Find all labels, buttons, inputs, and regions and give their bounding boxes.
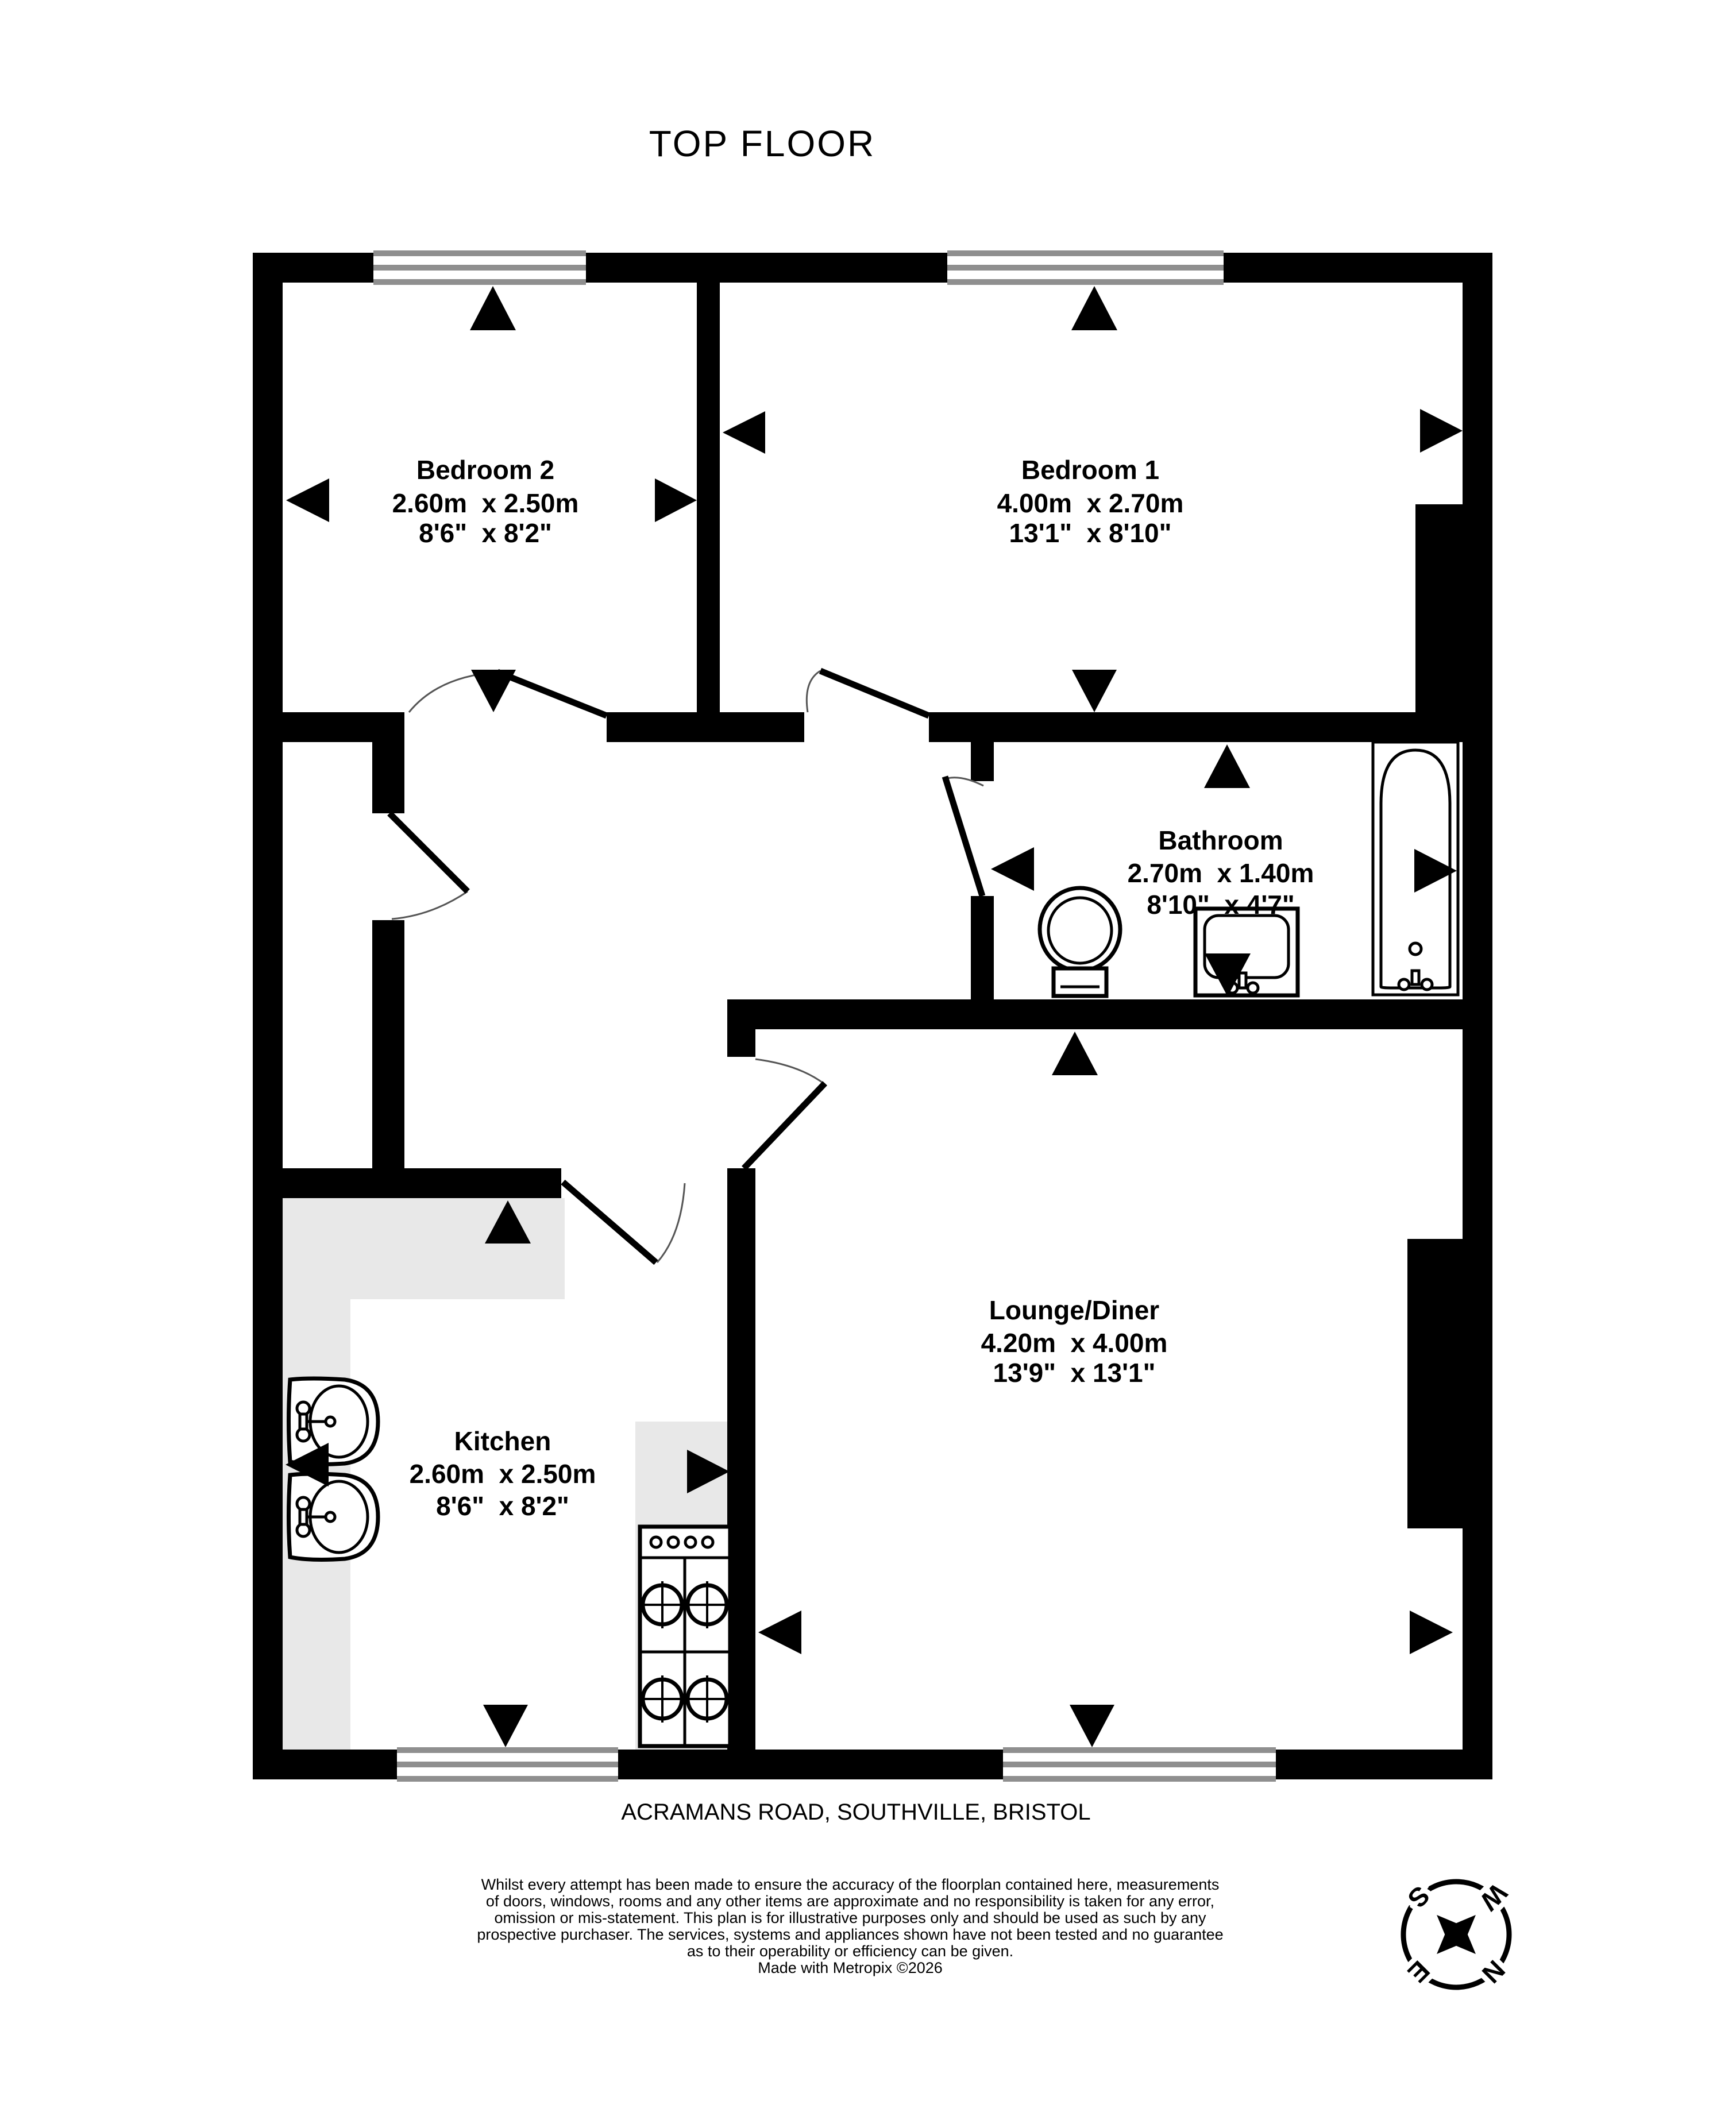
floorplan-svg: TOP FLOOR bbox=[0, 0, 1736, 2120]
window-kitchen bbox=[397, 1747, 618, 1782]
room-name: Bedroom 2 bbox=[416, 455, 554, 485]
door-lounge bbox=[744, 1059, 825, 1168]
room-name: Bedroom 1 bbox=[1021, 455, 1159, 485]
chimney-breast-bedroom1 bbox=[1415, 504, 1463, 712]
room-dims-metric: 2.60m x 2.50m bbox=[410, 1459, 596, 1489]
arrow-left-icon bbox=[758, 1611, 801, 1654]
room-dims-metric: 4.00m x 2.70m bbox=[997, 488, 1184, 518]
room-dims-metric: 4.20m x 4.00m bbox=[981, 1328, 1168, 1358]
room-dims-metric: 2.70m x 1.40m bbox=[1128, 858, 1314, 888]
arrow-up-icon bbox=[470, 286, 516, 330]
disclaimer-line: omission or mis-statement. This plan is … bbox=[494, 1909, 1206, 1926]
arrow-left-icon bbox=[723, 411, 765, 454]
address-caption: ACRAMANS ROAD, SOUTHVILLE, BRISTOL bbox=[621, 1800, 1090, 1825]
arrow-right-icon bbox=[1410, 1611, 1453, 1654]
room-label-bedroom2: Bedroom 2 2.60m x 2.50m 8'6" x 8'2" bbox=[392, 455, 579, 548]
room-dims-metric: 2.60m x 2.50m bbox=[392, 488, 579, 518]
arrow-down-icon bbox=[483, 1705, 528, 1747]
compass-w: W bbox=[1474, 1878, 1513, 1917]
toilet-icon bbox=[1040, 888, 1120, 996]
window-bedroom2 bbox=[373, 250, 586, 285]
compass-n: N bbox=[1476, 1955, 1511, 1989]
door-kitchen bbox=[563, 1182, 685, 1262]
wall-hall-corridor bbox=[372, 920, 404, 1168]
room-name: Lounge/Diner bbox=[989, 1295, 1160, 1325]
disclaimer-credit: Made with Metropix ©2026 bbox=[758, 1959, 943, 1976]
door-bedroom1 bbox=[807, 671, 929, 716]
wall-bathroom-left bbox=[971, 896, 994, 1029]
wall-lounge-top bbox=[727, 999, 1463, 1029]
cooker-hob-icon bbox=[639, 1527, 731, 1746]
arrow-down-icon bbox=[471, 670, 516, 712]
disclaimer-line: of doors, windows, rooms and any other i… bbox=[486, 1893, 1214, 1910]
wall-kitchen-top bbox=[283, 1168, 561, 1198]
room-name: Bathroom bbox=[1158, 825, 1283, 855]
arrow-left-icon bbox=[286, 478, 329, 522]
room-dims-imperial: 13'9" x 13'1" bbox=[993, 1358, 1156, 1388]
arrow-up-icon bbox=[1052, 1032, 1098, 1075]
window-bedroom1 bbox=[947, 250, 1224, 285]
arrow-right-icon bbox=[1420, 409, 1463, 453]
arrow-left-icon bbox=[991, 847, 1034, 891]
room-label-lounge: Lounge/Diner 4.20m x 4.00m 13'9" x 13'1" bbox=[981, 1295, 1168, 1388]
washbasin-icon bbox=[1195, 909, 1298, 995]
arrow-down-icon bbox=[1072, 670, 1117, 712]
kitchen-sink-icon bbox=[289, 1474, 379, 1559]
room-name: Kitchen bbox=[454, 1426, 551, 1456]
room-dims-imperial: 8'10" x 4'7" bbox=[1147, 890, 1294, 920]
door-hallway bbox=[389, 813, 468, 919]
door-bathroom bbox=[945, 777, 983, 896]
chimney-breast-lounge bbox=[1407, 1239, 1463, 1528]
floorplan-page: TOP FLOOR bbox=[0, 0, 1736, 2120]
arrow-up-icon bbox=[1071, 286, 1117, 330]
room-label-bedroom1: Bedroom 1 4.00m x 2.70m 13'1" x 8'10" bbox=[997, 455, 1184, 548]
room-label-bathroom: Bathroom 2.70m x 1.40m 8'10" x 4'7" bbox=[1128, 825, 1314, 920]
wall-bedroom-partition bbox=[697, 283, 720, 712]
disclaimer-line: as to their operability or efficiency ca… bbox=[687, 1943, 1013, 1960]
disclaimer-line: Whilst every attempt has been made to en… bbox=[481, 1876, 1220, 1893]
arrow-up-icon bbox=[1204, 744, 1250, 788]
disclaimer: Whilst every attempt has been made to en… bbox=[477, 1876, 1223, 1976]
arrow-right-icon bbox=[655, 478, 697, 522]
room-label-kitchen: Kitchen 2.60m x 2.50m 8'6" x 8'2" bbox=[410, 1426, 596, 1521]
kitchen-sink-icon bbox=[289, 1378, 379, 1464]
room-dims-imperial: 8'6" x 8'2" bbox=[419, 518, 552, 548]
compass-icon: N E S W bbox=[1365, 1840, 1550, 2026]
arrow-down-icon bbox=[1070, 1705, 1114, 1747]
page-title: TOP FLOOR bbox=[649, 123, 876, 164]
room-dims-imperial: 13'1" x 8'10" bbox=[1009, 518, 1172, 548]
disclaimer-line: prospective purchaser. The services, sys… bbox=[477, 1926, 1223, 1943]
room-dims-imperial: 8'6" x 8'2" bbox=[436, 1491, 569, 1521]
window-lounge bbox=[1003, 1747, 1276, 1782]
